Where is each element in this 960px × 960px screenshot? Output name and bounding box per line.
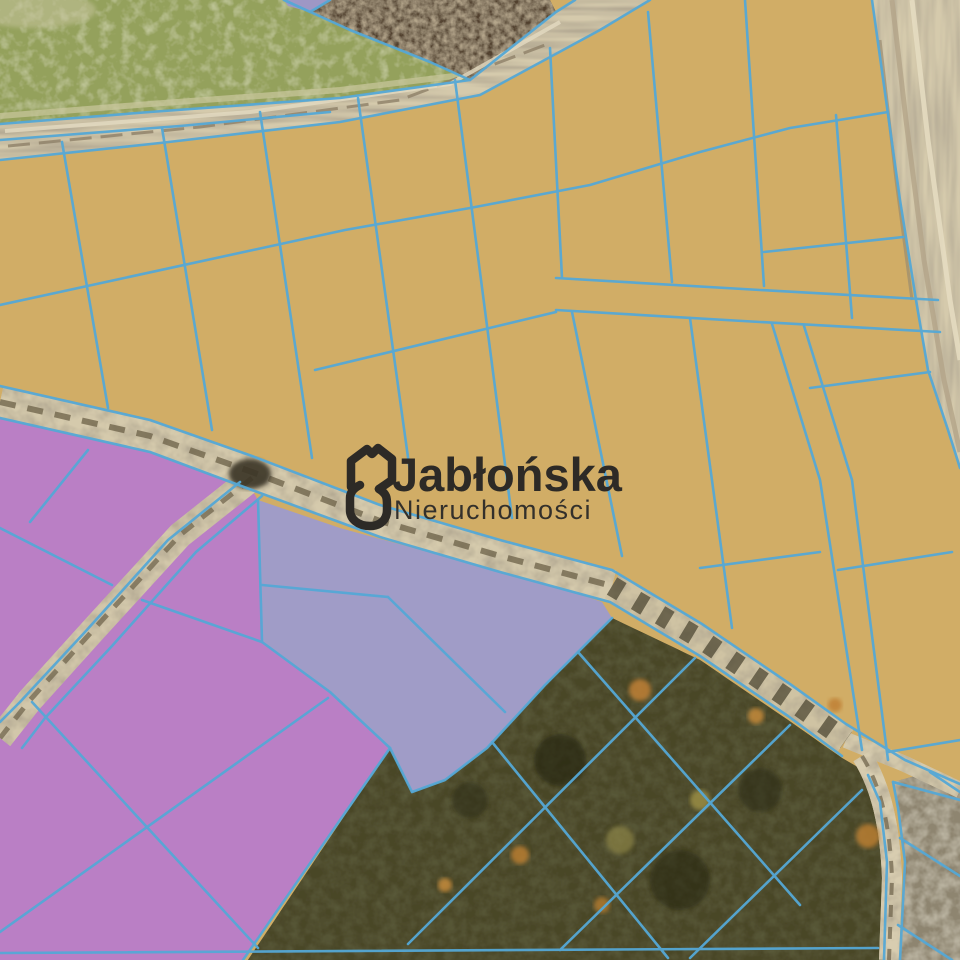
listing-map-screenshot: Jabłońska Nieruchomości (0, 0, 960, 960)
aerial-parcel-map: Jabłońska Nieruchomości (0, 0, 960, 960)
brand-subtitle: Nieruchomości (394, 495, 592, 525)
brand-wordmark: Jabłońska (392, 448, 623, 501)
